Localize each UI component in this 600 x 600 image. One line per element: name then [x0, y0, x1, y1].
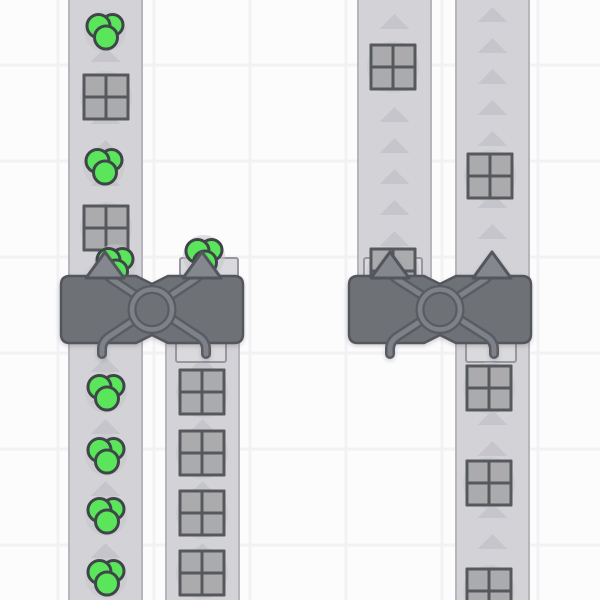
square-quadrant: [492, 178, 511, 197]
square-quadrant: [373, 47, 392, 66]
item-green-circle-cluster: [85, 434, 127, 476]
square-quadrant: [373, 69, 392, 88]
grid-line-vertical: [57, 0, 60, 600]
game-canvas[interactable]: [0, 0, 600, 600]
square-quadrant: [204, 515, 223, 534]
square-quadrant: [182, 493, 201, 512]
square-quadrant: [108, 99, 127, 118]
square-quadrant: [469, 463, 488, 482]
square-quadrant: [108, 77, 127, 96]
item-green-circle-cluster: [83, 145, 125, 187]
item-square-shape: [176, 427, 228, 479]
square-quadrant: [204, 433, 223, 452]
belt-edge: [357, 0, 359, 278]
item-square-shape: [176, 487, 228, 539]
item-square-shape: [463, 457, 515, 509]
square-quadrant: [491, 593, 510, 600]
square-quadrant: [395, 47, 414, 66]
belt-edge: [165, 340, 167, 600]
square-quadrant: [469, 485, 488, 504]
item-square-shape: [464, 150, 516, 202]
square-quadrant: [204, 493, 223, 512]
belt-edge: [238, 340, 240, 600]
square-quadrant: [182, 553, 201, 572]
square-quadrant: [491, 571, 510, 590]
green-circle: [95, 26, 118, 49]
square-quadrant: [86, 77, 105, 96]
square-quadrant: [395, 69, 414, 88]
square-quadrant: [470, 178, 489, 197]
square-quadrant: [182, 372, 201, 391]
square-quadrant: [182, 433, 201, 452]
green-circle: [96, 450, 119, 473]
square-quadrant: [491, 390, 510, 409]
square-quadrant: [491, 485, 510, 504]
item-square-shape: [80, 71, 132, 123]
square-quadrant: [492, 156, 511, 175]
square-quadrant: [491, 368, 510, 387]
square-quadrant: [86, 230, 105, 249]
belt-edge: [430, 0, 432, 278]
item-square-shape: [463, 565, 515, 600]
square-quadrant: [182, 515, 201, 534]
square-quadrant: [182, 575, 201, 594]
square-quadrant: [491, 463, 510, 482]
square-quadrant: [182, 455, 201, 474]
green-circle: [96, 510, 119, 533]
square-quadrant: [86, 208, 105, 227]
square-quadrant: [470, 156, 489, 175]
square-quadrant: [204, 372, 223, 391]
game-viewport: [0, 0, 600, 600]
item-square-shape: [463, 362, 515, 414]
green-circle: [96, 572, 119, 595]
square-quadrant: [204, 455, 223, 474]
square-quadrant: [204, 553, 223, 572]
square-quadrant: [86, 99, 105, 118]
item-square-shape: [367, 41, 419, 93]
square-quadrant: [108, 208, 127, 227]
square-quadrant: [182, 394, 201, 413]
item-green-circle-cluster: [85, 371, 127, 413]
square-quadrant: [204, 394, 223, 413]
grid-line-vertical: [249, 0, 252, 600]
square-quadrant: [204, 575, 223, 594]
item-square-shape: [176, 366, 228, 418]
square-quadrant: [469, 593, 488, 600]
green-circle: [94, 161, 117, 184]
item-green-circle-cluster: [84, 10, 126, 52]
item-green-circle-cluster: [85, 556, 127, 598]
green-circle: [96, 387, 119, 410]
item-square-shape: [176, 547, 228, 599]
item-green-circle-cluster: [85, 494, 127, 536]
square-quadrant: [469, 571, 488, 590]
grid-line-vertical: [345, 0, 348, 600]
square-quadrant: [469, 368, 488, 387]
square-quadrant: [469, 390, 488, 409]
grid-line-vertical: [537, 0, 540, 600]
